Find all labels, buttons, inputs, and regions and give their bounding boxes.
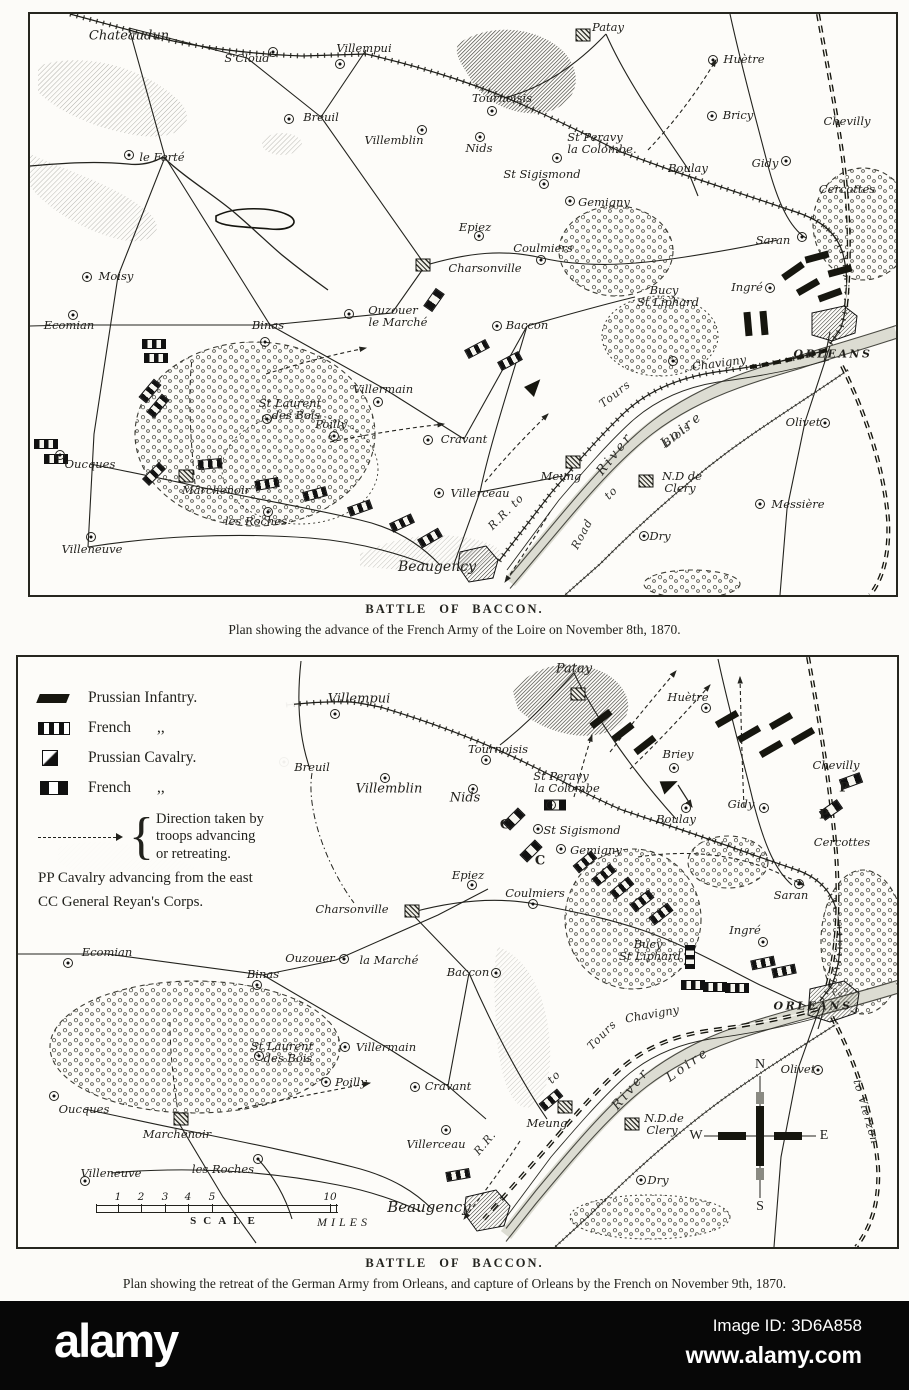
town-dot — [252, 980, 262, 990]
place-label: Villemblin — [365, 133, 424, 147]
place-label: St Liphard — [637, 295, 699, 309]
town-square — [566, 456, 581, 469]
place-label: Gidy — [728, 797, 755, 811]
town-dot — [373, 397, 383, 407]
unit-marker-pi — [828, 265, 853, 278]
town-dot — [552, 153, 562, 163]
place-label: Binas — [252, 318, 284, 332]
legend-label: French — [88, 779, 131, 797]
compass-south-label: S — [756, 1199, 764, 1215]
scale-tick-number: 5 — [209, 1191, 216, 1203]
town-dot — [344, 309, 354, 319]
scale-bar: SCALE MILES 1234510 — [96, 1195, 338, 1229]
town-dot — [321, 1077, 331, 1087]
place-label: Beaugency — [398, 559, 476, 575]
place-label: Baccon — [447, 965, 490, 979]
place-label: Cravant — [425, 1079, 472, 1093]
place-label: Nids — [465, 141, 492, 155]
unit-marker-fi — [389, 513, 415, 532]
caption-top-subtitle: Plan showing the advance of the French A… — [0, 622, 909, 638]
town-dot — [546, 800, 556, 810]
place-label: P — [839, 781, 849, 796]
scale-tick — [188, 1204, 189, 1213]
town-dot — [781, 156, 791, 166]
place-label: Saran — [774, 888, 809, 902]
place-label: Road — [569, 517, 596, 552]
town-dot — [253, 1154, 263, 1164]
compass-west-label: W — [689, 1128, 702, 1144]
place-label: Marchenoir — [143, 1127, 211, 1141]
scale-tick — [212, 1204, 213, 1213]
unit-marker-fi — [592, 863, 617, 886]
town-dot — [536, 255, 546, 265]
legend-row-prussian-infantry: Prussian Infantry. — [38, 683, 294, 713]
unit-marker-fc — [423, 288, 445, 312]
place-label: Beaugency — [387, 1198, 471, 1216]
place-label: Epiez — [452, 868, 484, 882]
legend-cc-note: CC General Reyan's Corps. — [38, 894, 294, 911]
place-label: des Bois — [264, 1051, 313, 1065]
scale-tick — [330, 1204, 331, 1213]
place-label: Cravant — [441, 432, 488, 446]
town-dot — [441, 1125, 451, 1135]
place-label: Oucques — [59, 1102, 110, 1116]
town-square — [576, 29, 591, 42]
map-legend: Prussian Infantry. French ,, Prussian Ca… — [38, 683, 294, 911]
town-dot — [492, 321, 502, 331]
legend-pp-note: PP Cavalry advancing from the east — [38, 870, 294, 887]
place-label: to — [602, 484, 620, 502]
scale-tick-number: 4 — [185, 1191, 192, 1203]
unit-marker-fi — [771, 964, 797, 979]
image-id-text: Image ID: 3D6A858 — [713, 1316, 862, 1336]
french-cavalry-symbol — [38, 781, 88, 795]
town-dot — [668, 356, 678, 366]
place-label: ORLEANS — [774, 1000, 853, 1013]
place-label: Moisy — [99, 269, 134, 283]
unit-marker-pi — [743, 312, 752, 337]
place-label: Epiez — [459, 220, 491, 234]
place-label: Cercottes — [814, 835, 870, 849]
town-dot — [284, 114, 294, 124]
unit-marker-pi — [759, 740, 783, 758]
place-label: Chevilly — [823, 114, 870, 128]
place-label: Tournoisis — [468, 742, 528, 756]
place-label: Cercottes — [819, 182, 875, 196]
place-label: Poilly — [315, 417, 347, 431]
town-square — [571, 688, 586, 701]
unit-marker-fi — [347, 499, 373, 517]
unit-marker-pi — [791, 727, 815, 745]
place-label: Ecomian — [82, 945, 133, 959]
place-label: les Roches — [225, 514, 287, 528]
town-dot — [434, 488, 444, 498]
place-label: Gidy — [752, 156, 779, 170]
place-label: Gemigny — [570, 843, 622, 857]
unit-marker-fi — [144, 353, 168, 363]
place-label: Clery — [664, 481, 695, 495]
scale-tick — [336, 1204, 337, 1213]
town-dot — [701, 703, 711, 713]
place-label: les Roches — [192, 1162, 254, 1176]
town-square — [179, 470, 194, 483]
scale-word: SCALE — [190, 1215, 262, 1227]
place-label: des Bois — [272, 408, 321, 422]
caption-top: BATTLE OF BACCON. Plan showing the advan… — [0, 602, 909, 638]
place-label: St Sigismond — [503, 167, 580, 181]
unit-marker-pw — [660, 776, 681, 795]
place-label: Boulay — [656, 812, 696, 826]
place-label: Saran — [756, 233, 791, 247]
place-label: Binas — [247, 967, 279, 981]
place-label: Messière — [771, 497, 824, 511]
town-dot — [124, 150, 134, 160]
place-label: Tours — [585, 1018, 620, 1053]
place-label: Villermain — [353, 382, 413, 396]
unit-marker-pi — [781, 261, 805, 280]
scale-tick — [96, 1204, 97, 1213]
town-dot — [330, 709, 340, 719]
unit-marker-pi — [769, 712, 793, 730]
town-dot — [340, 1042, 350, 1052]
unit-marker-fi — [629, 890, 654, 913]
town-dot — [55, 450, 65, 460]
town-dot — [669, 763, 679, 773]
unit-marker-pi — [633, 735, 656, 755]
town-dot — [63, 958, 73, 968]
compass-north-label: N — [755, 1057, 765, 1073]
place-label: ORLEANS — [794, 348, 873, 361]
place-label: to — [545, 1068, 563, 1086]
unit-marker-fi — [464, 339, 490, 359]
town-dot — [49, 1091, 59, 1101]
place-label: St Liphard — [619, 949, 681, 963]
unit-marker-pw — [524, 375, 546, 397]
town-dot — [707, 111, 717, 121]
town-dot — [758, 937, 768, 947]
place-label: Ecomian — [44, 318, 95, 332]
place-label: la Marché — [360, 953, 419, 967]
town-dot — [556, 844, 566, 854]
town-dot — [565, 196, 575, 206]
place-label: Tours — [597, 378, 633, 410]
unit-marker-fi — [685, 945, 695, 969]
place-label: Villeneuve — [62, 542, 123, 556]
direction-line: Direction taken by — [156, 811, 264, 828]
place-label: Chateaudun — [89, 29, 169, 44]
caption-top-title: BATTLE OF BACCON. — [0, 602, 909, 617]
legend-row-french-cavalry: French ,, — [38, 773, 294, 803]
town-dot — [339, 954, 349, 964]
unit-marker-pi — [805, 251, 830, 264]
unit-marker-fi — [725, 983, 749, 993]
place-label: Villerceau — [451, 486, 510, 500]
unit-marker-pi — [611, 722, 634, 742]
brace-glyph: { — [129, 814, 154, 861]
place-label: Villeneuve — [81, 1166, 142, 1180]
town-dot — [797, 232, 807, 242]
caption-bottom-subtitle: Plan showing the retreat of the German A… — [0, 1276, 909, 1292]
town-dot — [759, 803, 769, 813]
town-dot — [410, 1082, 420, 1092]
legend-label: Prussian Infantry. — [88, 689, 197, 707]
unit-marker-fi — [254, 477, 279, 491]
unit-marker-fi — [142, 462, 166, 486]
caption-bottom: BATTLE OF BACCON. Plan showing the retre… — [0, 1256, 909, 1292]
town-square — [174, 1113, 189, 1126]
arrowhead-icon — [116, 833, 123, 841]
town-dot — [491, 968, 501, 978]
unit-marker-fi — [497, 351, 523, 371]
town-square — [405, 905, 420, 918]
place-label: C — [500, 818, 510, 833]
place-label: Chevilly — [812, 758, 859, 772]
place-label: Briey — [663, 747, 694, 761]
dashed-arrow-icon — [38, 837, 116, 838]
scale-bar-line — [96, 1205, 338, 1213]
town-dot — [487, 106, 497, 116]
place-label: Meung — [527, 1116, 568, 1130]
place-label: Marchenoir — [182, 483, 250, 497]
place-label: Nids — [450, 791, 481, 806]
place-label: Olivet — [786, 415, 821, 429]
place-label: Tournoisis — [472, 91, 532, 105]
town-dot — [481, 755, 491, 765]
town-dot — [533, 824, 543, 834]
map-bottom-panel: Prussian Infantry. French ,, Prussian Ca… — [16, 655, 899, 1249]
town-dot — [423, 435, 433, 445]
place-label: S'Cloud — [224, 51, 269, 65]
unit-marker-fi — [648, 903, 673, 926]
compass-rose: N E S W — [688, 1057, 832, 1215]
place-label: River — [594, 430, 637, 479]
place-label: le Marché — [369, 315, 428, 329]
scale-tick-number: 1 — [115, 1191, 122, 1203]
watermark-bar: alamy Image ID: 3D6A858 www.alamy.com — [0, 1301, 909, 1390]
place-label: Patay — [556, 662, 592, 677]
compass-cross — [688, 1057, 832, 1215]
place-label: Villerceau — [407, 1137, 466, 1151]
place-label: to Vierzon — [851, 1078, 882, 1146]
town-square — [558, 1101, 573, 1114]
place-label: Baccon — [506, 318, 549, 332]
unit-marker-pi — [796, 278, 820, 296]
town-dot — [260, 337, 270, 347]
scale-tick-number: 3 — [162, 1191, 169, 1203]
legend-row-prussian-cavalry: Prussian Cavalry. — [38, 743, 294, 773]
place-label: la Colombe. — [567, 142, 636, 156]
town-square — [625, 1118, 640, 1131]
place-label: Oucques — [65, 457, 116, 471]
place-label: le Ferté — [139, 150, 184, 164]
place-label: Boulay — [668, 161, 708, 175]
place-label: P — [819, 808, 829, 823]
place-label: Charsonville — [448, 261, 521, 275]
place-label: Chavigny — [624, 1002, 680, 1025]
place-label: River — [609, 1065, 653, 1113]
legend-row-french-infantry: French ,, — [38, 713, 294, 743]
place-label: Gemigny — [578, 195, 630, 209]
town-dot — [82, 272, 92, 282]
place-label: Ingré — [731, 280, 763, 294]
alamy-url[interactable]: www.alamy.com — [686, 1342, 862, 1369]
place-label: Poilly — [335, 1075, 367, 1089]
unit-marker-fi — [198, 458, 223, 470]
scale-tick — [165, 1204, 166, 1213]
place-label: Villermain — [356, 1040, 416, 1054]
caption-bottom-title: BATTLE OF BACCON. — [0, 1256, 909, 1271]
place-label: Huètre — [723, 52, 764, 66]
town-dot — [528, 899, 538, 909]
unit-marker-fi — [34, 439, 58, 449]
prussian-cavalry-symbol — [38, 750, 88, 766]
town-dot — [329, 431, 339, 441]
legend-direction-note: { Direction taken by troops advancing or… — [38, 811, 294, 863]
place-label: Bricy — [723, 108, 754, 122]
place-label: Huètre — [667, 690, 708, 704]
unit-marker-pi — [759, 311, 768, 336]
place-label: Villempui — [328, 692, 391, 707]
place-label: la Colombe — [534, 781, 600, 795]
french-infantry-symbol — [38, 722, 88, 735]
unit-marker-fi — [417, 528, 443, 549]
place-label: Clery — [646, 1123, 677, 1137]
scale-tick-number: 10 — [323, 1191, 336, 1203]
ditto-mark: ,, — [157, 719, 165, 737]
place-label: Breuil — [294, 760, 330, 774]
place-label: Ouzouer — [285, 951, 335, 965]
alamy-logo: alamy — [54, 1313, 177, 1368]
legend-label: Prussian Cavalry. — [88, 749, 196, 767]
place-label: Dry — [649, 529, 670, 543]
unit-marker-fi — [703, 982, 727, 992]
unit-marker-pi — [737, 725, 761, 743]
scale-tick — [118, 1204, 119, 1213]
town-dot — [636, 1175, 646, 1185]
unit-marker-pi — [715, 710, 739, 728]
scale-tick-number: 2 — [138, 1191, 145, 1203]
unit-marker-pi — [818, 288, 843, 303]
place-label: Villempui — [336, 41, 391, 55]
unit-marker-fi — [142, 339, 166, 349]
town-square — [416, 259, 431, 272]
legend-label: French — [88, 719, 131, 737]
place-label: Charsonville — [315, 902, 388, 916]
town-dot — [765, 283, 775, 293]
place-label: Coulmiers — [513, 241, 573, 255]
place-label: Patay — [592, 20, 624, 34]
place-label: St Sigismond — [543, 823, 620, 837]
map-top-panel: ChateaudunS'CloudVillempuiTournoisisBreu… — [28, 12, 898, 597]
place-label: Breuil — [303, 110, 339, 124]
town-dot — [335, 59, 345, 69]
ditto-mark: ,, — [157, 779, 165, 797]
unit-marker-fi — [681, 980, 705, 990]
prussian-infantry-symbol — [38, 694, 88, 703]
miles-word: MILES — [317, 1215, 371, 1230]
town-dot — [820, 418, 830, 428]
scanned-map-page: ChateaudunS'CloudVillempuiTournoisisBreu… — [0, 0, 909, 1390]
direction-line: troops advancing — [156, 828, 264, 845]
town-dot — [262, 414, 272, 424]
direction-line: or retreating. — [156, 846, 264, 863]
town-dot — [708, 55, 718, 65]
town-dot — [755, 499, 765, 509]
town-dot — [639, 531, 649, 541]
place-label: Ingré — [729, 923, 761, 937]
unit-marker-fi — [610, 876, 635, 899]
unit-marker-fi — [302, 486, 328, 502]
place-label: Coulmiers — [505, 886, 565, 900]
town-dot — [86, 532, 96, 542]
town-square — [639, 475, 654, 488]
unit-marker-pi — [589, 709, 612, 729]
unit-marker-fi — [445, 1168, 470, 1182]
place-label: C — [535, 854, 545, 869]
map-top-labels-layer: ChateaudunS'CloudVillempuiTournoisisBreu… — [30, 14, 896, 595]
compass-east-label: E — [820, 1128, 829, 1144]
place-label: Meung — [541, 469, 582, 483]
scale-tick — [141, 1204, 142, 1213]
place-label: Dry — [647, 1173, 668, 1187]
place-label: Villemblin — [356, 782, 423, 797]
place-label: Chavigny — [691, 352, 747, 373]
place-label: R.R. — [471, 1128, 499, 1157]
